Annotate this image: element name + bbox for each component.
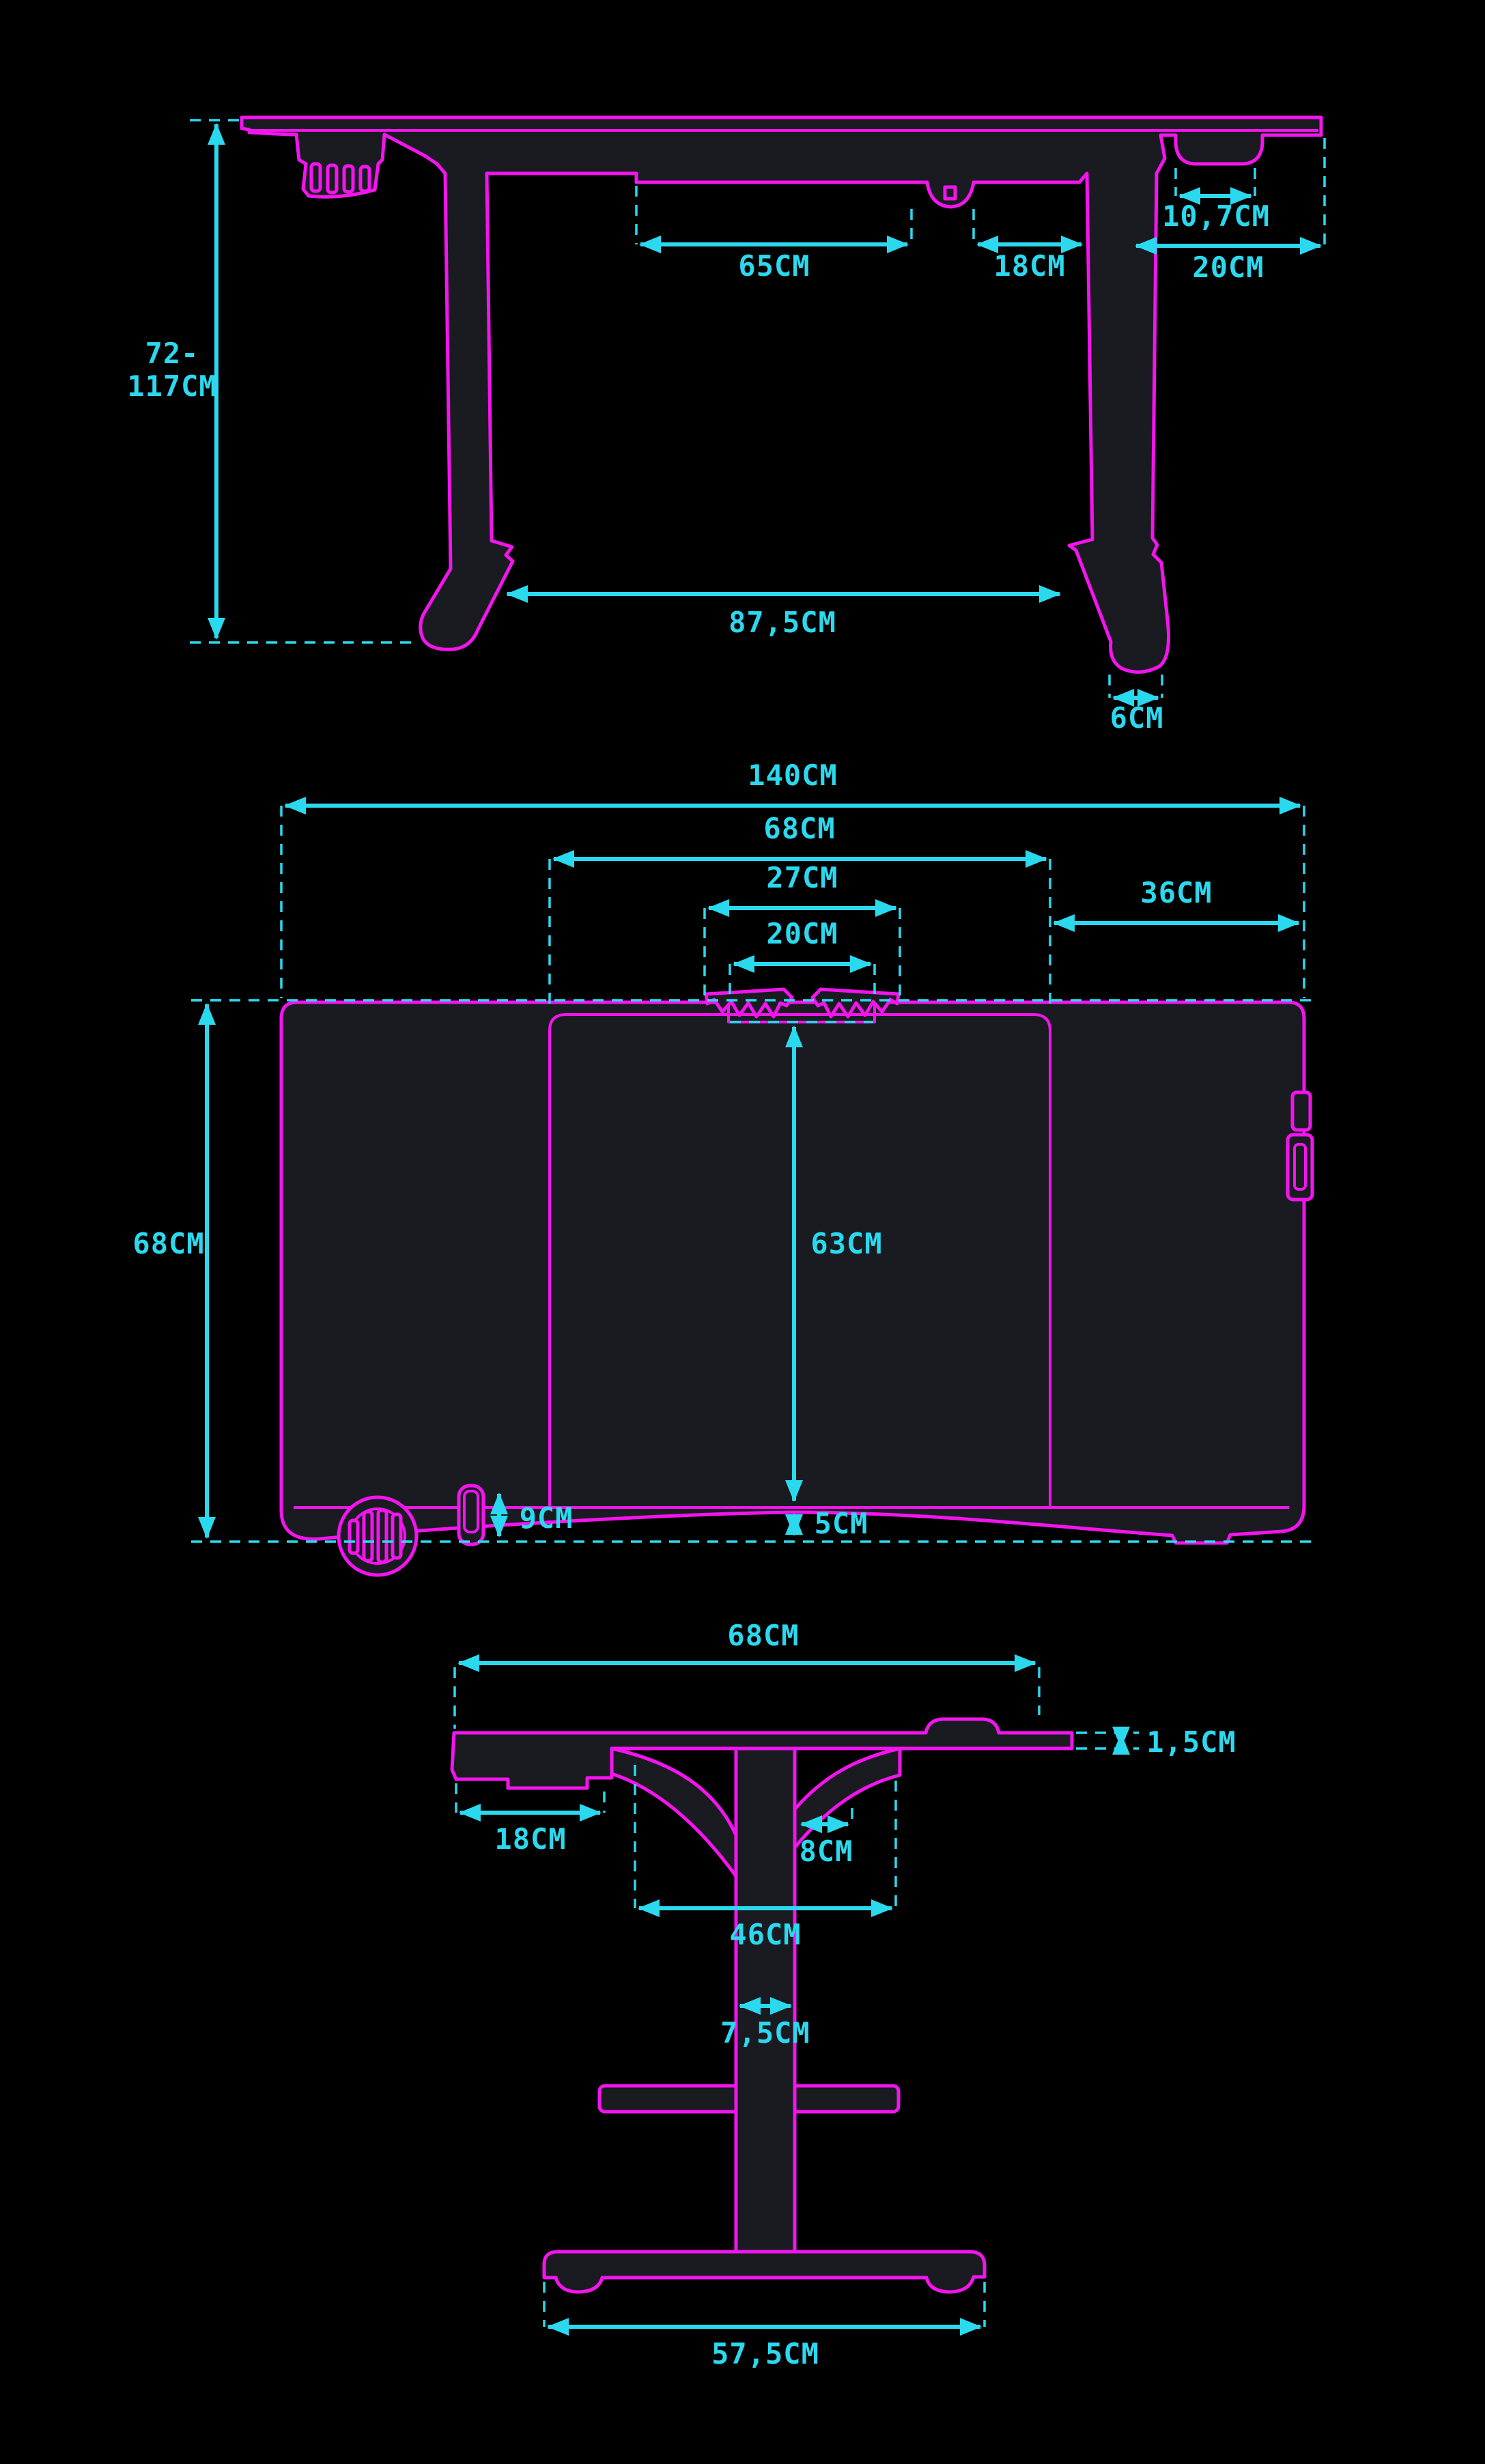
dim-18cm-front: 18CM <box>974 209 1081 283</box>
dim-label-63cm: 63CM <box>810 1227 882 1260</box>
dim-label-68cm-panel: 68CM <box>763 812 835 845</box>
dim-label-10-7cm: 10,7CM <box>1162 199 1270 233</box>
desk-dimension-diagram: 72- 117CM 65CM 18CM 20CM 10,7CM 87,5C <box>0 0 1485 2464</box>
dim-18cm-side: 18CM <box>456 1783 604 1856</box>
dim-height-72-117: 72- 117CM <box>127 120 413 642</box>
dim-label-5cm: 5CM <box>815 1507 868 1540</box>
dim-label-27cm: 27CM <box>766 861 838 894</box>
dim-label-87-5cm: 87,5CM <box>729 606 836 639</box>
dim-label-18cm-side: 18CM <box>494 1822 566 1856</box>
dim-label-20cm-front: 20CM <box>1192 251 1264 284</box>
dim-label-36cm: 36CM <box>1140 876 1212 909</box>
dim-20cm-top: 20CM <box>730 917 875 999</box>
diagram-canvas: 72- 117CM 65CM 18CM 20CM 10,7CM 87,5C <box>0 0 1485 2464</box>
dim-68cm-panel: 68CM <box>550 812 1050 1012</box>
dim-1-5cm: 1,5CM <box>1076 1725 1236 1759</box>
dim-label-140cm: 140CM <box>748 759 837 792</box>
dim-label-1-5cm: 1,5CM <box>1146 1725 1236 1759</box>
top-view: 140CM 68CM 27CM 36CM 20CM 68CM <box>132 759 1312 1575</box>
side-foot-outline <box>544 2252 985 2292</box>
dim-label-9cm: 9CM <box>520 1501 574 1535</box>
dim-label-57-5cm: 57,5CM <box>711 2337 819 2370</box>
dim-label-20cm-top: 20CM <box>766 917 838 950</box>
dim-label-46cm: 46CM <box>729 1918 801 1951</box>
cable-hanger-icon <box>945 187 955 199</box>
front-view: 72- 117CM 65CM 18CM 20CM 10,7CM 87,5C <box>127 117 1325 735</box>
dim-6cm: 6CM <box>1109 675 1163 735</box>
dim-label-7-5cm: 7,5CM <box>720 2016 810 2050</box>
dim-label-18cm-front: 18CM <box>993 249 1065 283</box>
dim-57-5cm: 57,5CM <box>544 2282 985 2370</box>
side-left-arm <box>612 1748 736 1876</box>
side-hook-icon <box>1288 1092 1312 1200</box>
side-leg-column <box>736 1748 795 2257</box>
dim-36cm: 36CM <box>1054 876 1299 923</box>
side-right-arm <box>795 1748 900 1847</box>
dim-68cm-depth: 68CM <box>132 1000 232 1538</box>
dim-68cm-side: 68CM <box>455 1619 1039 1729</box>
headphone-tongue-icon <box>459 1486 483 1544</box>
dim-label-height-line2: 117CM <box>127 369 216 403</box>
dim-87-5cm: 87,5CM <box>507 594 1060 639</box>
dim-10-7cm: 10,7CM <box>1162 168 1270 233</box>
front-desk-outline <box>242 117 1321 672</box>
dim-65cm: 65CM <box>636 186 911 283</box>
side-view: 68CM 1,5CM 18CM 8CM 46CM 7,5CM <box>452 1619 1236 2370</box>
dim-label-8cm: 8CM <box>800 1835 853 1868</box>
dim-label-65cm: 65CM <box>738 249 810 283</box>
dim-label-6cm: 6CM <box>1110 701 1164 735</box>
dim-label-height-line1: 72- <box>145 337 199 370</box>
dim-label-68cm-side: 68CM <box>727 1619 799 1652</box>
cup-holder-icon <box>339 1497 416 1575</box>
dim-label-68cm-depth: 68CM <box>132 1227 204 1260</box>
